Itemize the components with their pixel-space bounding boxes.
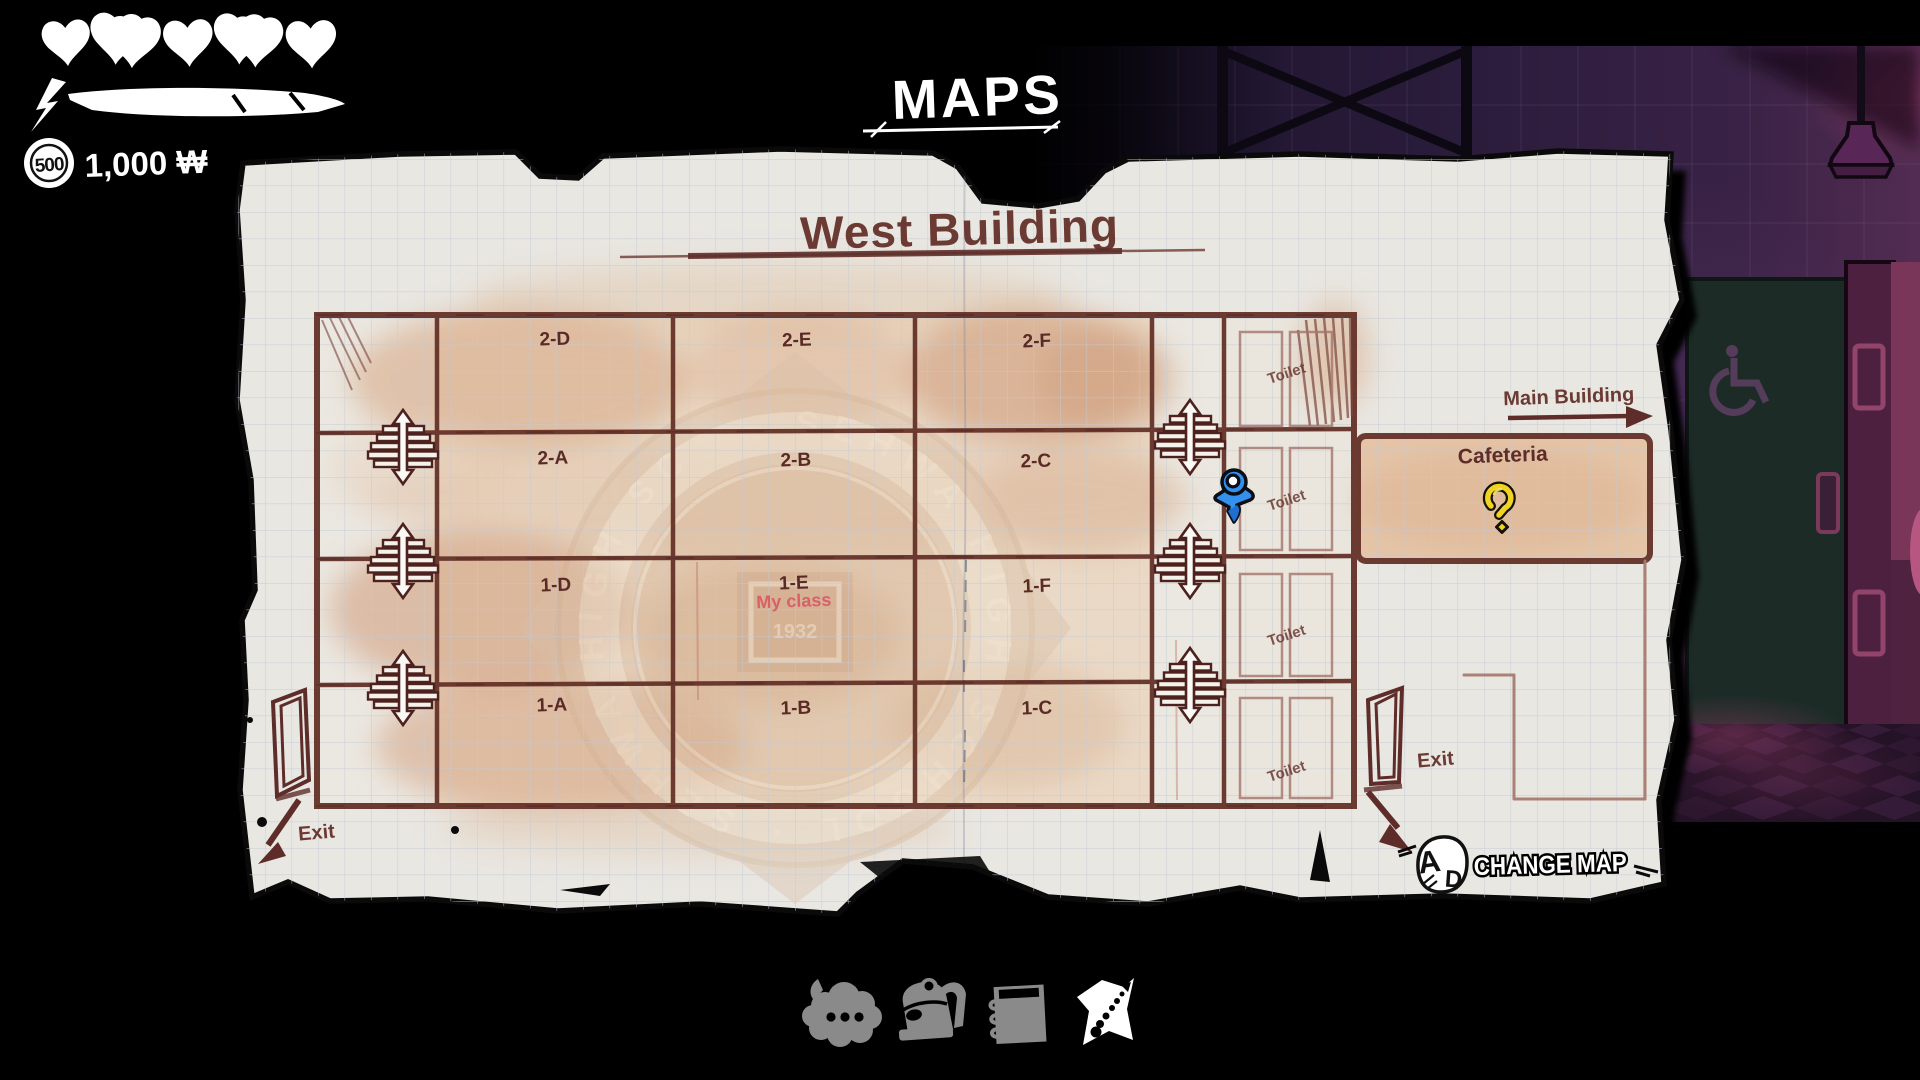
- svg-text:2-D: 2-D: [539, 328, 570, 350]
- svg-text:Exit: Exit: [297, 820, 336, 845]
- svg-text:Main Building: Main Building: [1503, 384, 1635, 411]
- svg-text:500: 500: [34, 154, 65, 177]
- svg-text:2-C: 2-C: [1020, 450, 1052, 472]
- svg-text:1-B: 1-B: [780, 697, 811, 719]
- svg-text:1-A: 1-A: [536, 694, 568, 716]
- svg-text:1-C: 1-C: [1021, 697, 1053, 719]
- svg-text:CHANGE MAP: CHANGE MAP: [1473, 849, 1627, 881]
- svg-text:2-B: 2-B: [780, 449, 811, 471]
- svg-text:2-A: 2-A: [537, 447, 569, 469]
- svg-text:2-F: 2-F: [1022, 331, 1051, 353]
- svg-text:Exit: Exit: [1416, 747, 1455, 772]
- svg-text:1-D: 1-D: [540, 574, 571, 596]
- svg-text:D: D: [1444, 866, 1463, 894]
- svg-text:1-F: 1-F: [1022, 576, 1051, 598]
- svg-text:2-E: 2-E: [782, 329, 812, 351]
- svg-text:Cafeteria: Cafeteria: [1457, 442, 1548, 468]
- svg-text:My class: My class: [756, 590, 832, 613]
- svg-text:1,000 ₩: 1,000 ₩: [84, 143, 209, 184]
- svg-text:MAPS: MAPS: [891, 63, 1064, 131]
